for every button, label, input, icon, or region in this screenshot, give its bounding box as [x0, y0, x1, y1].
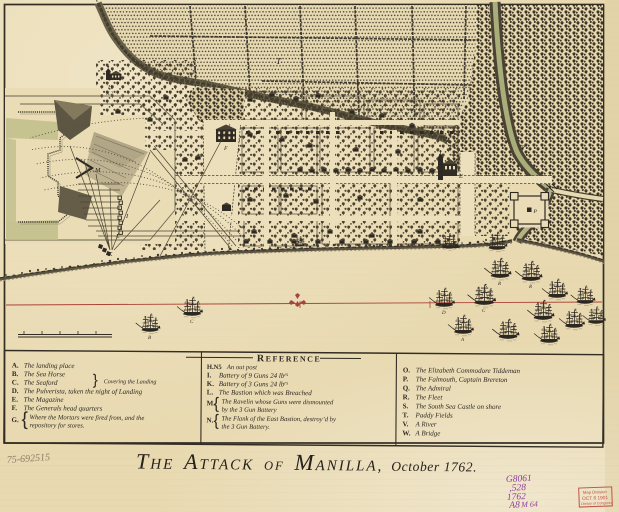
svg-text:A Bridge: A Bridge [414, 429, 440, 437]
svg-text:E.: E. [12, 396, 19, 404]
svg-text:M: M [94, 167, 101, 174]
svg-text:The Generals head quarters: The Generals head quarters [24, 404, 103, 413]
svg-text:D.: D. [12, 387, 19, 395]
svg-text:P: P [533, 209, 538, 215]
svg-text:O.: O. [403, 366, 411, 374]
svg-text:{: { [214, 395, 220, 412]
svg-text:R.: R. [403, 393, 410, 401]
svg-text:}: } [93, 372, 98, 389]
svg-text:repository for stores.: repository for stores. [29, 422, 84, 429]
svg-text:A.: A. [12, 362, 19, 370]
svg-text:The Fleet: The Fleet [416, 393, 444, 401]
svg-text:REFERENCE: REFERENCE [257, 353, 321, 364]
svg-text:S.: S. [403, 402, 409, 410]
svg-text:Battery of 3 Guns 24 lbrs: Battery of 3 Guns 24 lbrs [219, 380, 289, 388]
svg-text:The Seaford: The Seaford [24, 379, 58, 387]
svg-text:B.: B. [12, 370, 19, 378]
svg-text:M 64: M 64 [520, 499, 538, 509]
svg-text:H: H [107, 85, 113, 91]
svg-text:L.: L. [207, 388, 214, 396]
svg-text:An out post: An out post [226, 364, 257, 371]
svg-text:The Flank of the East Bastion,: The Flank of the East Bastion, destroy’d… [221, 416, 336, 424]
svg-text:The landing place: The landing place [24, 362, 75, 370]
svg-text:I.: I. [207, 371, 212, 379]
svg-text:{: { [213, 412, 219, 429]
svg-text:Covering the Landing: Covering the Landing [104, 379, 157, 385]
svg-text:F.: F. [12, 404, 18, 412]
svg-text:W.: W. [402, 429, 410, 437]
svg-text:The Sea Horse: The Sea Horse [24, 370, 65, 378]
svg-text:Where the Mortars were fired f: Where the Mortars were fired from, and t… [30, 414, 145, 422]
svg-text:E: E [458, 173, 463, 180]
svg-text:T.: T. [403, 411, 409, 419]
svg-text:K.: K. [207, 380, 215, 388]
svg-text:The Admiral: The Admiral [416, 384, 451, 392]
svg-text:The Magazine: The Magazine [24, 396, 64, 404]
svg-text:R: R [497, 282, 501, 287]
svg-text:The Ravelin whose Guns were di: The Ravelin whose Guns were dismounted [222, 399, 334, 407]
svg-text:A River: A River [414, 420, 436, 428]
svg-text:Q.: Q. [403, 384, 411, 392]
svg-text:F: F [223, 146, 228, 152]
svg-text:C.: C. [12, 379, 19, 387]
svg-text:A8: A8 [508, 500, 520, 511]
svg-text:{: { [21, 409, 28, 430]
svg-text:L: L [115, 233, 120, 240]
svg-text:G.: G. [11, 416, 19, 424]
svg-text:The Elizabeth Commodore Tiddem: The Elizabeth Commodore Tiddeman [416, 366, 521, 375]
svg-text:D: D [441, 311, 446, 316]
svg-text:Paddy Fields: Paddy Fields [415, 411, 453, 419]
svg-text:R: R [528, 285, 532, 290]
svg-text:the 3 Gun Battery.: the 3 Gun Battery. [221, 424, 270, 431]
svg-text:V.: V. [402, 420, 408, 428]
svg-text:Battery of 9 Guns 24 lbrs: Battery of 9 Guns 24 lbrs [219, 371, 289, 379]
svg-text:by the 3 Gun Battery: by the 3 Gun Battery [222, 407, 277, 414]
svg-text:The South Sea Castle on shore: The South Sea Castle on shore [416, 402, 502, 411]
svg-text:B: B [148, 336, 151, 341]
svg-text:The Falmouth, Captain Brereton: The Falmouth, Captain Brereton [416, 375, 508, 384]
svg-text:Map Division: Map Division [583, 489, 608, 495]
svg-text:The Pulverista, taken the nigh: The Pulverista, taken the night of Landi… [24, 387, 143, 396]
svg-text:P.: P. [403, 375, 409, 383]
svg-text:H.N5: H.N5 [207, 364, 223, 371]
svg-text:The Bastion which was Breached: The Bastion which was Breached [219, 388, 313, 397]
